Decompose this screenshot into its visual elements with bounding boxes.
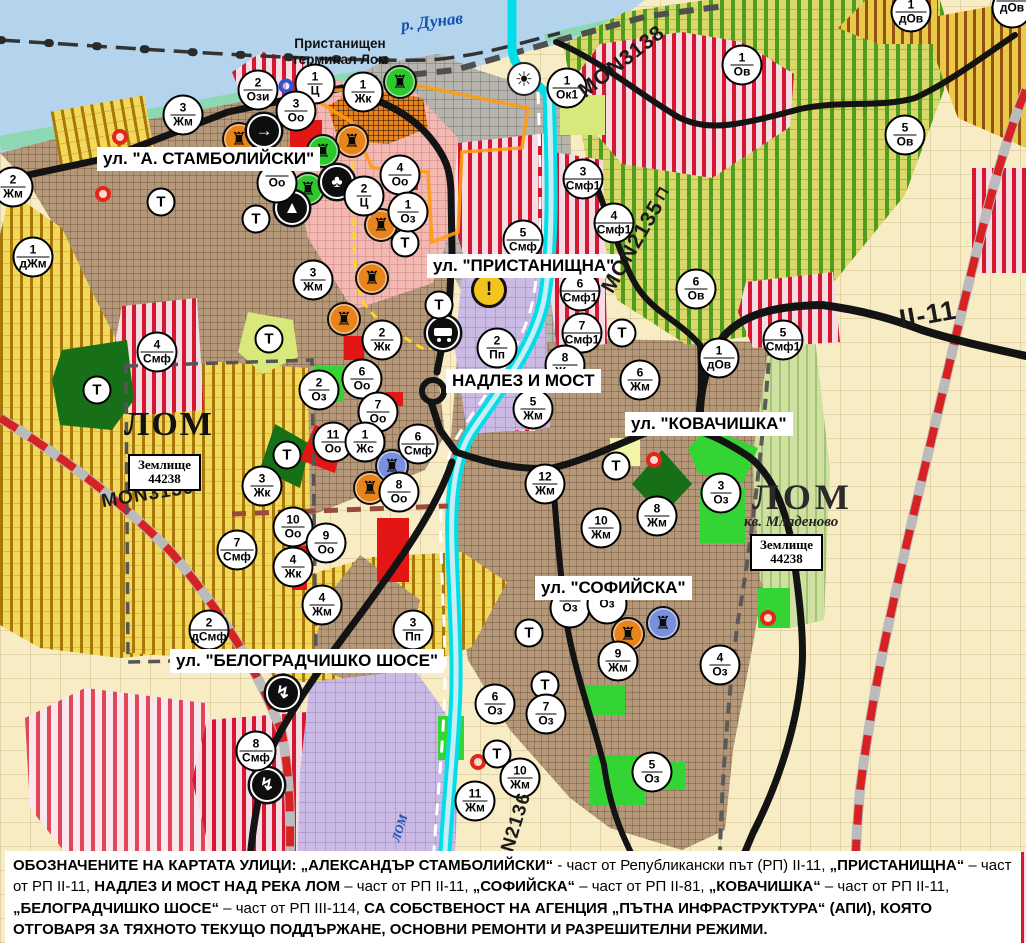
poi-reddot-icon (112, 129, 128, 145)
zone-marker-6-Оз: 6Оз (475, 684, 516, 725)
zone-marker-4-Жм: 4Жм (302, 585, 343, 626)
poi-warning-icon: ! (471, 272, 507, 308)
zone-marker-6-Жм: 6Жм (620, 360, 661, 401)
zone-marker-10-Жм: 10Жм (500, 758, 541, 799)
zone-marker-5-Ов: 5Ов (885, 115, 926, 156)
zone-marker-6-Ов: 6Ов (676, 269, 717, 310)
poi-monument-orange-icon: ♜ (327, 302, 361, 336)
zone-marker-5-Жм: 5Жм (513, 389, 554, 430)
transport-area-marker: Т (147, 188, 176, 217)
zone-marker-5-Смф: 5Смф (503, 220, 544, 261)
zone-marker-дОв: дОв (992, 0, 1026, 29)
zone-marker-8-Оо: 8Оо (379, 472, 420, 513)
zone-marker-2-Жм: 2Жм (0, 167, 34, 208)
poi-reddot-icon (760, 610, 776, 626)
zone-marker-1-дОв: 1дОв (891, 0, 932, 33)
zone-marker-3-Жм: 3Жм (163, 95, 204, 136)
zone-marker-4-Смф1: 4Смф1 (594, 203, 635, 244)
poi-lightning-icon: ↯ (250, 768, 284, 802)
zone-marker-2-Пп: 2Пп (477, 328, 518, 369)
zone-marker-1-дОв: 1дОв (699, 338, 740, 379)
zone-marker-1-Оз: 1Оз (388, 192, 429, 233)
zone-marker-2-Ози: 2Ози (238, 70, 279, 111)
zone-marker-9-Оо: 9Оо (306, 523, 347, 564)
poi-truck-icon (426, 316, 460, 350)
zone-marker-9-Жм: 9Жм (598, 641, 639, 682)
zone-marker-5-Смф1: 5Смф1 (763, 320, 804, 361)
markers-layer: 1Ц1Жк3Оо2Ози3Жм2Жм1дЖм4ОоОо2Ц1Оз3Жм5Смф1… (0, 0, 1026, 943)
transport-area-marker: Т (515, 619, 544, 648)
transport-area-marker: Т (602, 452, 631, 481)
zone-marker-Оо: Оо (257, 163, 298, 204)
zone-marker-4-Оз: 4Оз (700, 645, 741, 686)
zone-marker-5-Оз: 5Оз (632, 752, 673, 793)
map-canvas[interactable]: 1Ц1Жк3Оо2Ози3Жм2Жм1дЖм4ОоОо2Ц1Оз3Жм5Смф1… (0, 0, 1026, 943)
zone-marker-Оз: Оз (550, 588, 591, 629)
transport-area-marker: Т (273, 441, 302, 470)
zone-marker-3-Пп: 3Пп (393, 610, 434, 651)
transport-area-marker: Т (608, 319, 637, 348)
transport-area-marker: Т (255, 325, 284, 354)
poi-monument-green-icon: ♜ (306, 134, 340, 168)
zone-marker-8-Жм: 8Жм (545, 345, 586, 386)
poi-monument-green-icon: ♜ (383, 65, 417, 99)
zone-marker-2-Ц: 2Ц (344, 176, 385, 217)
zone-marker-3-Жм: 3Жм (293, 260, 334, 301)
transport-area-marker: Т (391, 229, 420, 258)
zone-marker-12-Жм: 12Жм (525, 464, 566, 505)
zone-marker-1-Ок1: 1Ок1 (547, 68, 588, 109)
poi-monument-orange-icon: ♜ (335, 124, 369, 158)
transport-area-marker: Т (83, 376, 112, 405)
zone-marker-8-Смф: 8Смф (236, 731, 277, 772)
zone-marker-6-Смф1: 6Смф1 (560, 271, 601, 312)
zone-marker-6-Смф: 6Смф (398, 424, 439, 465)
zone-marker-2-дСмф: 2дСмф (189, 610, 230, 651)
zone-marker-1-Жк: 1Жк (343, 72, 384, 113)
zone-marker-10-Жм: 10Жм (581, 508, 622, 549)
zone-marker-3-Смф1: 3Смф1 (563, 159, 604, 200)
zone-marker-4-Жк: 4Жк (273, 547, 314, 588)
zone-marker-3-Оз: 3Оз (701, 473, 742, 514)
zone-marker-2-Жк: 2Жк (362, 320, 403, 361)
transport-area-marker: Т (425, 291, 454, 320)
zone-marker-2-Оз: 2Оз (299, 370, 340, 411)
zone-marker-Оз: Оз (587, 584, 628, 625)
zone-marker-4-Оо: 4Оо (380, 155, 421, 196)
poi-lightning-icon: ↯ (266, 676, 300, 710)
zone-marker-3-Жк: 3Жк (242, 466, 283, 507)
zone-marker-4-Смф: 4Смф (137, 332, 178, 373)
poi-reddot-icon (95, 186, 111, 202)
zone-marker-1-Жс: 1Жс (345, 422, 386, 463)
poi-reddot-icon (646, 452, 662, 468)
zone-marker-1-дЖм: 1дЖм (13, 237, 54, 278)
poi-monument-orange-icon: ♜ (355, 261, 389, 295)
zone-marker-7-Смф: 7Смф (217, 530, 258, 571)
zone-marker-11-Жм: 11Жм (455, 781, 496, 822)
zone-marker-1-Ов: 1Ов (722, 45, 763, 86)
zone-marker-3-Оо: 3Оо (276, 91, 317, 132)
zone-marker-7-Оз: 7Оз (526, 694, 567, 735)
poi-monument-blue-icon: ♜ (646, 606, 680, 640)
footnote-text: ОБОЗНАЧЕНИТЕ НА КАРТАТА УЛИЦИ: „АЛЕКСАНД… (5, 851, 1021, 943)
poi-sun-icon: ☀ (507, 62, 541, 96)
poi-arrow-icon: → (247, 114, 281, 148)
transport-area-marker: Т (242, 205, 271, 234)
zone-marker-8-Жм: 8Жм (637, 496, 678, 537)
